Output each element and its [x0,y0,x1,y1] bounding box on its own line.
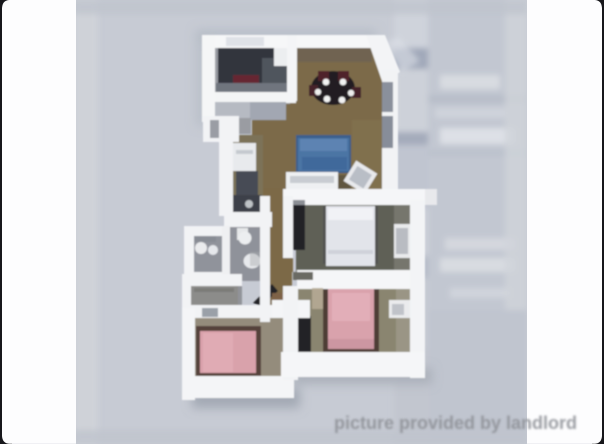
svg-text:picture provided by landlord: picture provided by landlord [334,413,577,433]
